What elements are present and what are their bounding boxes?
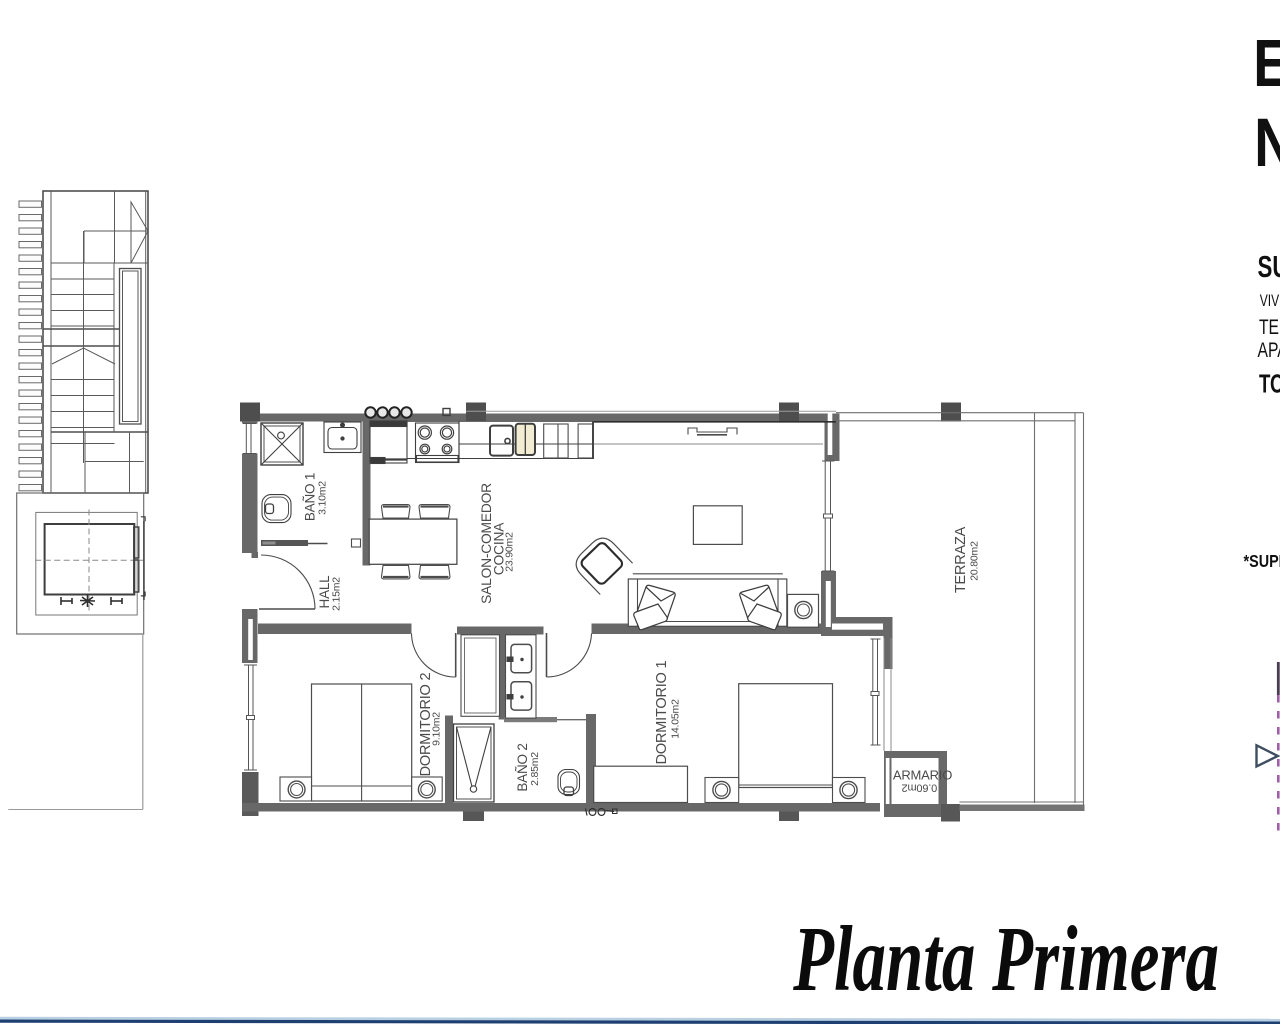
svg-text:23.90m2: 23.90m2: [504, 532, 516, 572]
svg-text:TERRAZA: TERRAZA: [953, 526, 969, 593]
svg-text:2.15m2: 2.15m2: [331, 577, 343, 611]
svg-text:*SUPE: *SUPE: [1244, 552, 1280, 572]
svg-text:SUP: SUP: [1258, 250, 1280, 284]
svg-text:Nº: Nº: [1254, 105, 1280, 182]
svg-text:0.60m2: 0.60m2: [902, 782, 938, 794]
svg-text:14.05m2: 14.05m2: [670, 699, 682, 739]
svg-text:20.80m2: 20.80m2: [969, 541, 981, 581]
svg-text:2.85m2: 2.85m2: [529, 752, 541, 786]
svg-text:TOT: TOT: [1259, 370, 1280, 399]
svg-text:BAÑO 2: BAÑO 2: [515, 743, 530, 791]
svg-text:DORMITORIO 1: DORMITORIO 1: [654, 661, 670, 765]
svg-text:Planta Primera: Planta Primera: [792, 907, 1219, 1010]
svg-text:9.10m2: 9.10m2: [431, 712, 443, 746]
svg-text:VIV: VIV: [1260, 292, 1280, 310]
svg-text:3.10m2: 3.10m2: [317, 481, 329, 515]
svg-text:TE: TE: [1259, 315, 1279, 339]
svg-text:ED: ED: [1253, 26, 1280, 100]
svg-text:BAÑO 1: BAÑO 1: [303, 473, 318, 521]
svg-text:ARMARIO: ARMARIO: [893, 768, 952, 783]
svg-text:APA: APA: [1258, 338, 1280, 362]
